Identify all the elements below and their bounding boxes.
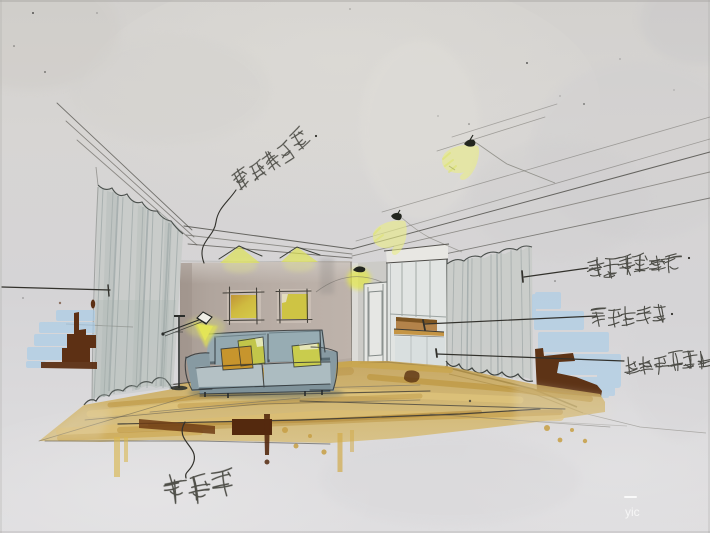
svg-text:yic: yic (625, 505, 640, 519)
